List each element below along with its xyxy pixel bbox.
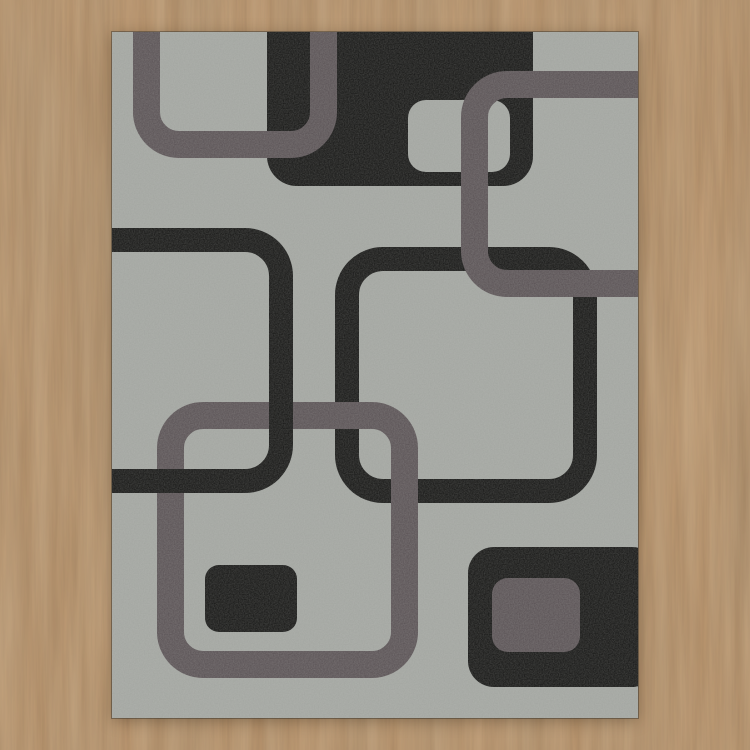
scene <box>0 0 750 750</box>
rug-texture <box>112 32 638 718</box>
area-rug <box>112 32 638 718</box>
rug-pattern <box>112 32 638 718</box>
